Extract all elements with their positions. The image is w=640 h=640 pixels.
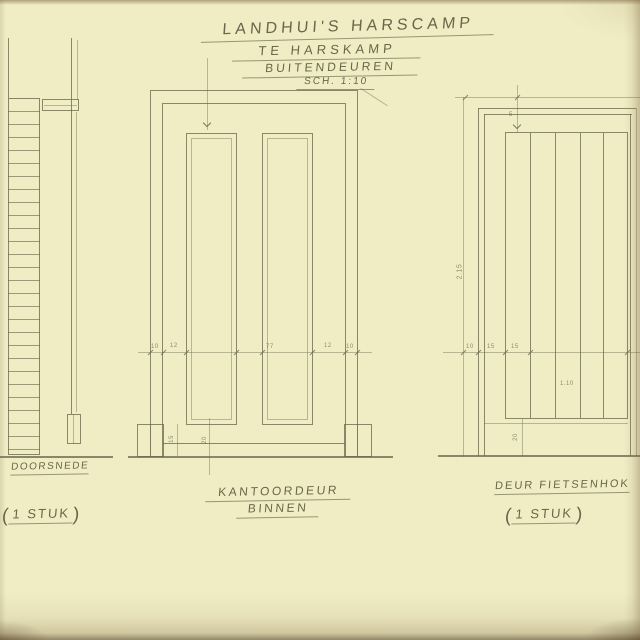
office-door-ground-line — [128, 456, 393, 458]
title-line-1: LANDHUI'S HARSCAMP — [201, 14, 495, 43]
frame-left-outer — [478, 108, 479, 456]
leaf-foot-block — [67, 414, 81, 444]
leaf-foot-inner-line — [73, 414, 74, 444]
frame-head-step — [44, 105, 77, 106]
plank-door-leaf — [505, 132, 628, 419]
dim-value: 10 — [466, 344, 474, 350]
dim-value: 15 — [511, 344, 519, 350]
frame-left-inner — [484, 114, 485, 456]
door-panel-right-inner — [267, 138, 308, 420]
frame-top-outer — [478, 108, 636, 109]
plank-joint-line — [530, 133, 531, 418]
plank-joint-line — [603, 133, 604, 418]
paren-close: ) — [575, 504, 584, 525]
frame-foot-left-line — [150, 424, 151, 457]
width-dim-value: 1.10 — [560, 381, 574, 387]
scale-leader-line — [360, 88, 387, 106]
door-leaf-edge — [71, 38, 72, 414]
door-bottom-rail — [163, 443, 345, 444]
frame-foot-right — [344, 424, 372, 457]
dim-value: 77 — [266, 344, 274, 350]
mid-dimension-line — [443, 352, 640, 353]
height-dim-value: 2.15 — [456, 264, 463, 280]
dim-value: 10 — [346, 344, 354, 350]
dim-value-vertical: 20 — [513, 433, 519, 441]
shed-door-count-label: (1 STUK) — [504, 504, 584, 527]
door-panel-left-inner — [191, 138, 232, 420]
dim-extension-line — [522, 419, 523, 457]
wall-line — [8, 38, 9, 98]
dim-value-vertical: 15 — [169, 435, 175, 443]
drawing-sheet: LANDHUI'S HARSCAMP TE HARSKAMP BUITENDEU… — [0, 0, 640, 640]
dim-extension-line — [177, 424, 178, 457]
mid-dimension-line — [138, 352, 372, 353]
office-door-caption: KANTOORDEUR — [205, 483, 352, 503]
office-door-subcaption: BINNEN — [236, 500, 320, 518]
bottom-rail-line — [484, 423, 628, 424]
dim-value-vertical: 20 — [202, 436, 208, 444]
top-dimension-line — [455, 97, 640, 98]
dim-extension-line — [209, 418, 210, 475]
count-text: 1 STUK — [9, 505, 74, 524]
dim-value: 5 — [509, 112, 513, 118]
paren-close: ) — [72, 504, 81, 525]
dim-value: 12 — [324, 343, 332, 349]
title-scale: SCH. 1:10 — [296, 76, 375, 90]
dim-value: 12 — [170, 343, 178, 349]
shed-door-caption: DEUR FIETSENHOK — [494, 478, 630, 495]
reference-arrowhead-icon — [513, 121, 521, 129]
dim-value: 10 — [151, 344, 159, 350]
frame-right-outer — [636, 108, 637, 456]
door-leaf-inner-line — [76, 112, 77, 412]
frame-foot-right-line — [357, 424, 358, 457]
count-text: 1 STUK — [512, 505, 577, 524]
dim-value: 15 — [487, 344, 495, 350]
plank-joint-line — [580, 133, 581, 418]
frame-right-inner — [630, 114, 631, 456]
section-caption: DOORSNEDE — [10, 460, 89, 475]
shed-door-ground-line — [438, 455, 640, 457]
frame-top-inner — [484, 114, 632, 115]
section-count-label: (1 STUK) — [1, 504, 81, 527]
section-ground-line — [0, 456, 113, 458]
door-leaf-edge-2 — [77, 40, 78, 100]
plank-joint-line — [555, 133, 556, 418]
hatch-column — [8, 98, 40, 455]
